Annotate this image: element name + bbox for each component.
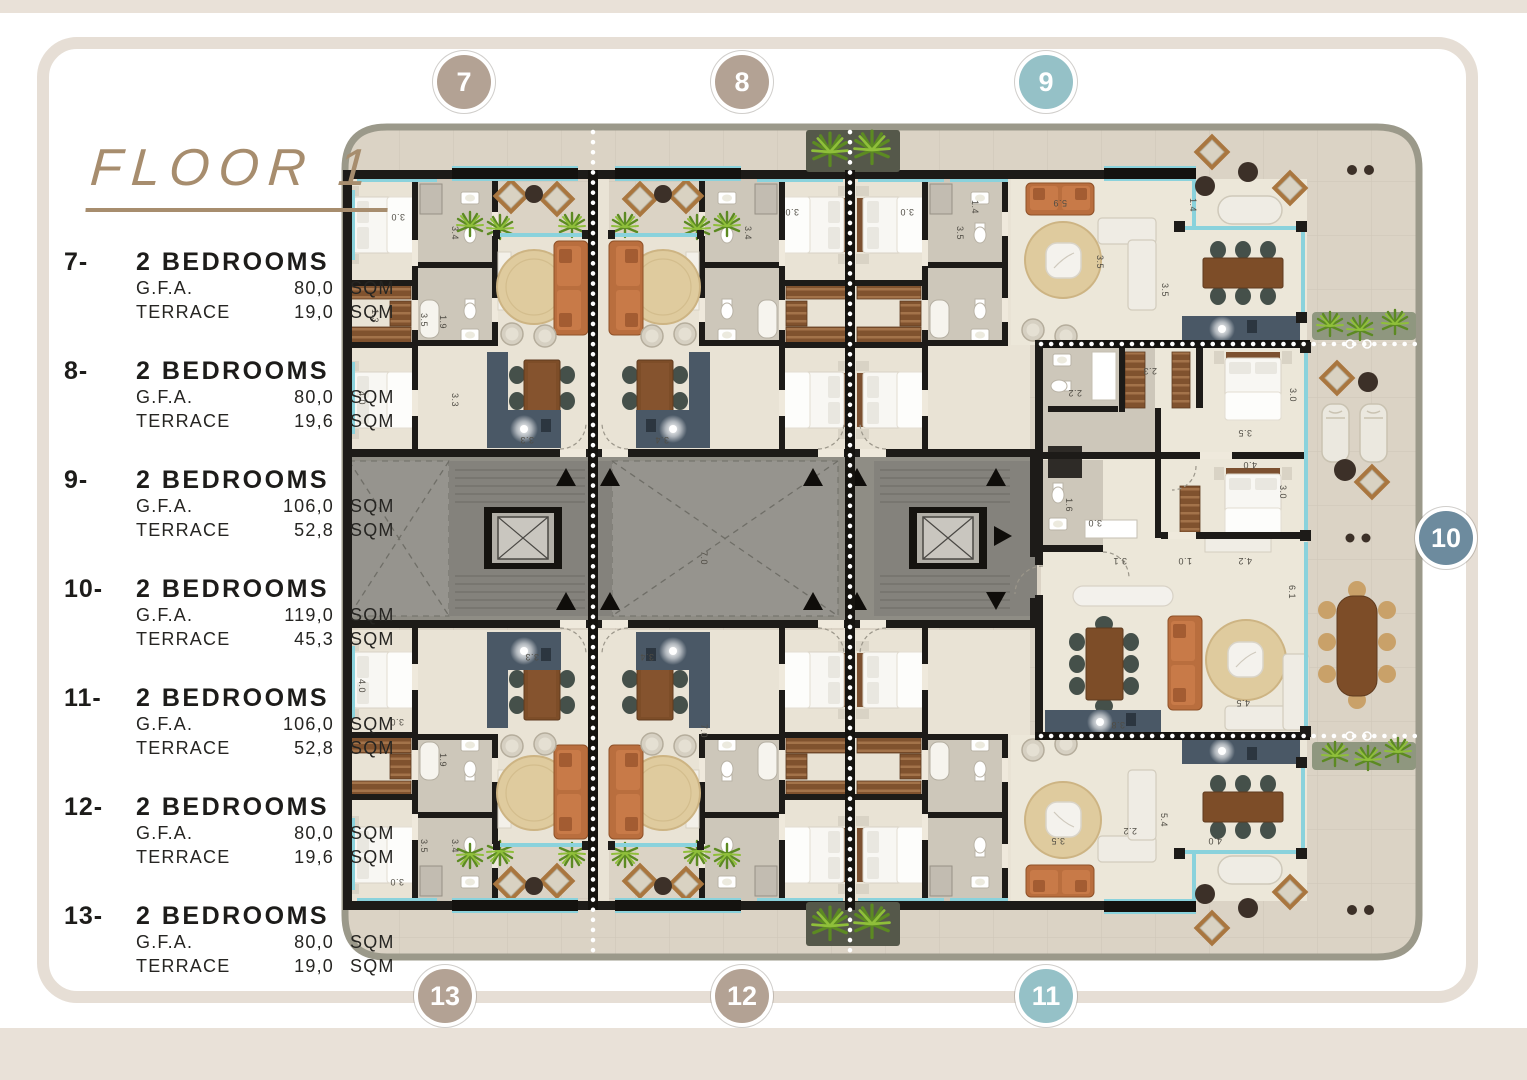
unit-marker-label: 7 <box>456 67 471 98</box>
gfa-label: G.F.A. <box>136 930 242 954</box>
gfa-label: G.F.A. <box>136 821 242 845</box>
terrace-unit: SQM <box>334 845 394 869</box>
unit-marker-13: 13 <box>418 969 472 1023</box>
unit-marker-8: 8 <box>715 55 769 109</box>
legend-sidebar: FLOOR 1 7- 2 BEDROOMS G.F.A.80,0SQM TERR… <box>64 138 364 978</box>
dimension-label: 3.0 <box>390 877 404 887</box>
unit-marker-label: 8 <box>734 67 749 98</box>
terrace-unit: SQM <box>334 954 394 978</box>
dimension-label: 3.5 <box>1160 283 1170 297</box>
terrace-label: TERRACE <box>136 954 242 978</box>
dimension-label: 3.0 <box>391 212 405 222</box>
dimension-label: 3.0 <box>1278 485 1288 499</box>
dimension-label: 1.9 <box>438 753 448 767</box>
unit-marker-label: 9 <box>1038 67 1053 98</box>
terrace-unit: SQM <box>334 518 394 542</box>
dimension-label: 4.5 <box>1236 698 1250 708</box>
dimension-label: 1.4 <box>970 200 980 214</box>
unit-number: 11- <box>64 684 136 760</box>
gfa-label: G.F.A. <box>136 385 242 409</box>
dimension-label: 7.0 <box>699 551 709 565</box>
terrace-value: 19,0 <box>242 954 334 978</box>
unit-listing-9: 9- 2 BEDROOMS G.F.A.106,0SQM TERRACE52,8… <box>64 466 364 542</box>
unit-listing-7: 7- 2 BEDROOMS G.F.A.80,0SQM TERRACE19,0S… <box>64 248 364 324</box>
unit-number: 9- <box>64 466 136 542</box>
gfa-unit: SQM <box>334 821 394 845</box>
terrace-value: 52,8 <box>242 518 334 542</box>
dimension-label: 5.9 <box>1053 198 1067 208</box>
unit-type: 2 BEDROOMS <box>136 575 394 603</box>
dimension-label: 3.5 <box>419 313 429 327</box>
dimension-label: 3.4 <box>640 652 654 662</box>
unit-listing-8: 8- 2 BEDROOMS G.F.A.80,0SQM TERRACE19,6S… <box>64 357 364 433</box>
dimension-label: 3.0 <box>1088 518 1102 528</box>
terrace-unit: SQM <box>334 736 394 760</box>
unit-marker-7: 7 <box>437 55 491 109</box>
terrace-label: TERRACE <box>136 627 242 651</box>
dimension-label: 1.4 <box>1188 198 1198 212</box>
dimension-label: 3.1 <box>1113 556 1127 566</box>
terrace-value: 19,6 <box>242 409 334 433</box>
terrace-value: 19,6 <box>242 845 334 869</box>
terrace-unit: SQM <box>334 300 394 324</box>
terrace-value: 45,3 <box>242 627 334 651</box>
gfa-label: G.F.A. <box>136 276 242 300</box>
terrace-value: 52,8 <box>242 736 334 760</box>
dimension-label: 3.5 <box>1095 255 1105 269</box>
terrace-label: TERRACE <box>136 736 242 760</box>
dimension-label: 3.4 <box>655 435 669 445</box>
dimension-label: 3.8 <box>1111 720 1125 730</box>
unit-marker-label: 12 <box>727 981 757 1012</box>
unit-marker-9: 9 <box>1019 55 1073 109</box>
dimension-label: 1.0 <box>1178 556 1192 566</box>
dimension-label: 3.4 <box>450 839 460 853</box>
unit-marker-label: 11 <box>1032 981 1061 1012</box>
gfa-unit: SQM <box>334 494 394 518</box>
gfa-unit: SQM <box>334 603 394 627</box>
terrace-label: TERRACE <box>136 409 242 433</box>
unit-listing-13: 13- 2 BEDROOMS G.F.A.80,0SQM TERRACE19,0… <box>64 902 364 978</box>
dimension-label: 7.0 <box>699 724 709 738</box>
dimension-label: 3.3 <box>450 393 460 407</box>
dimension-label: 5.4 <box>1159 813 1169 827</box>
gfa-value: 119,0 <box>242 603 334 627</box>
unit-marker-10: 10 <box>1419 511 1473 565</box>
gfa-value: 80,0 <box>242 930 334 954</box>
unit-type: 2 BEDROOMS <box>136 248 394 276</box>
dimension-label: 1.9 <box>438 315 448 329</box>
gfa-value: 80,0 <box>242 276 334 300</box>
terrace-label: TERRACE <box>136 300 242 324</box>
gfa-unit: SQM <box>334 276 394 300</box>
unit-type: 2 BEDROOMS <box>136 793 394 821</box>
dimension-label: 3.5 <box>1238 428 1252 438</box>
gfa-value: 80,0 <box>242 821 334 845</box>
dimension-label: 3.4 <box>743 226 753 240</box>
terrace-unit: SQM <box>334 627 394 651</box>
dimension-label: 2.3 <box>1143 366 1157 376</box>
dimension-label: 2.2 <box>1068 388 1082 398</box>
dimension-label: 3.5 <box>955 226 965 240</box>
dimension-label: 4.0 <box>1208 836 1222 846</box>
unit-marker-label: 13 <box>430 981 460 1012</box>
unit-list: 7- 2 BEDROOMS G.F.A.80,0SQM TERRACE19,0S… <box>64 248 364 978</box>
gfa-label: G.F.A. <box>136 494 242 518</box>
gfa-value: 106,0 <box>242 494 334 518</box>
terrace-value: 19,0 <box>242 300 334 324</box>
unit-marker-label: 10 <box>1431 523 1461 554</box>
dimension-label: 3.0 <box>1288 388 1298 402</box>
unit-number: 12- <box>64 793 136 869</box>
unit-type: 2 BEDROOMS <box>136 902 394 930</box>
dimension-label: 6.1 <box>1287 585 1297 599</box>
dimension-label: 3.0 <box>785 207 799 217</box>
terrace-unit: SQM <box>334 409 394 433</box>
unit-type: 2 BEDROOMS <box>136 357 394 385</box>
gfa-value: 106,0 <box>242 712 334 736</box>
gfa-label: G.F.A. <box>136 712 242 736</box>
unit-number: 7- <box>64 248 136 324</box>
dimension-label: 2.2 <box>1123 826 1137 836</box>
unit-number: 13- <box>64 902 136 978</box>
dimension-label: 4.0 <box>1243 460 1257 470</box>
unit-marker-11: 11 <box>1019 969 1073 1023</box>
unit-listing-10: 10- 2 BEDROOMS G.F.A.119,0SQM TERRACE45,… <box>64 575 364 651</box>
dimension-label: 3.3 <box>525 652 539 662</box>
gfa-unit: SQM <box>334 712 394 736</box>
gfa-label: G.F.A. <box>136 603 242 627</box>
dimension-label: 3.3 <box>520 435 534 445</box>
unit-number: 8- <box>64 357 136 433</box>
unit-marker-12: 12 <box>715 969 769 1023</box>
unit-number: 10- <box>64 575 136 651</box>
dimension-label: 4.2 <box>1238 556 1252 566</box>
dimension-label: 3.5 <box>1051 836 1065 846</box>
unit-type: 2 BEDROOMS <box>136 684 394 712</box>
dimension-label: 3.0 <box>900 207 914 217</box>
unit-listing-12: 12- 2 BEDROOMS G.F.A.80,0SQM TERRACE19,6… <box>64 793 364 869</box>
gfa-value: 80,0 <box>242 385 334 409</box>
gfa-unit: SQM <box>334 930 394 954</box>
dimension-label: 3.5 <box>419 839 429 853</box>
gfa-unit: SQM <box>334 385 394 409</box>
terrace-label: TERRACE <box>136 845 242 869</box>
dimension-label: 1.6 <box>1064 498 1074 512</box>
page-title: FLOOR 1 <box>85 138 392 212</box>
unit-type: 2 BEDROOMS <box>136 466 394 494</box>
terrace-label: TERRACE <box>136 518 242 542</box>
unit-listing-11: 11- 2 BEDROOMS G.F.A.106,0SQM TERRACE52,… <box>64 684 364 760</box>
dimension-label: 3.4 <box>450 226 460 240</box>
